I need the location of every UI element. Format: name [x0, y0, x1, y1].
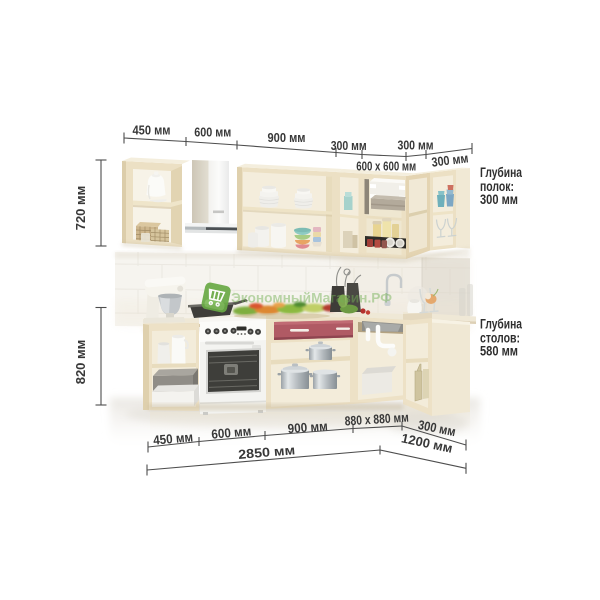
svg-text:720 мм: 720 мм: [73, 186, 88, 231]
svg-text:900 мм: 900 мм: [268, 130, 306, 145]
svg-text:Глубина: Глубина: [480, 165, 522, 180]
svg-text:600 x 600 мм: 600 x 600 мм: [356, 158, 416, 173]
svg-text:820 мм: 820 мм: [73, 340, 88, 385]
svg-text:300 мм: 300 мм: [431, 150, 470, 169]
svg-text:300 мм: 300 мм: [331, 138, 367, 153]
svg-text:300 мм: 300 мм: [398, 138, 434, 153]
svg-text:ЭкономныйМагазин.РФ: ЭкономныйМагазин.РФ: [231, 290, 392, 306]
svg-text:Глубина: Глубина: [480, 317, 522, 332]
svg-text:900 мм: 900 мм: [287, 418, 328, 436]
svg-text:580 мм: 580 мм: [480, 344, 518, 359]
svg-text:300 мм: 300 мм: [480, 192, 518, 207]
svg-text:450 мм: 450 мм: [133, 123, 171, 138]
svg-text:600 мм: 600 мм: [194, 125, 231, 140]
